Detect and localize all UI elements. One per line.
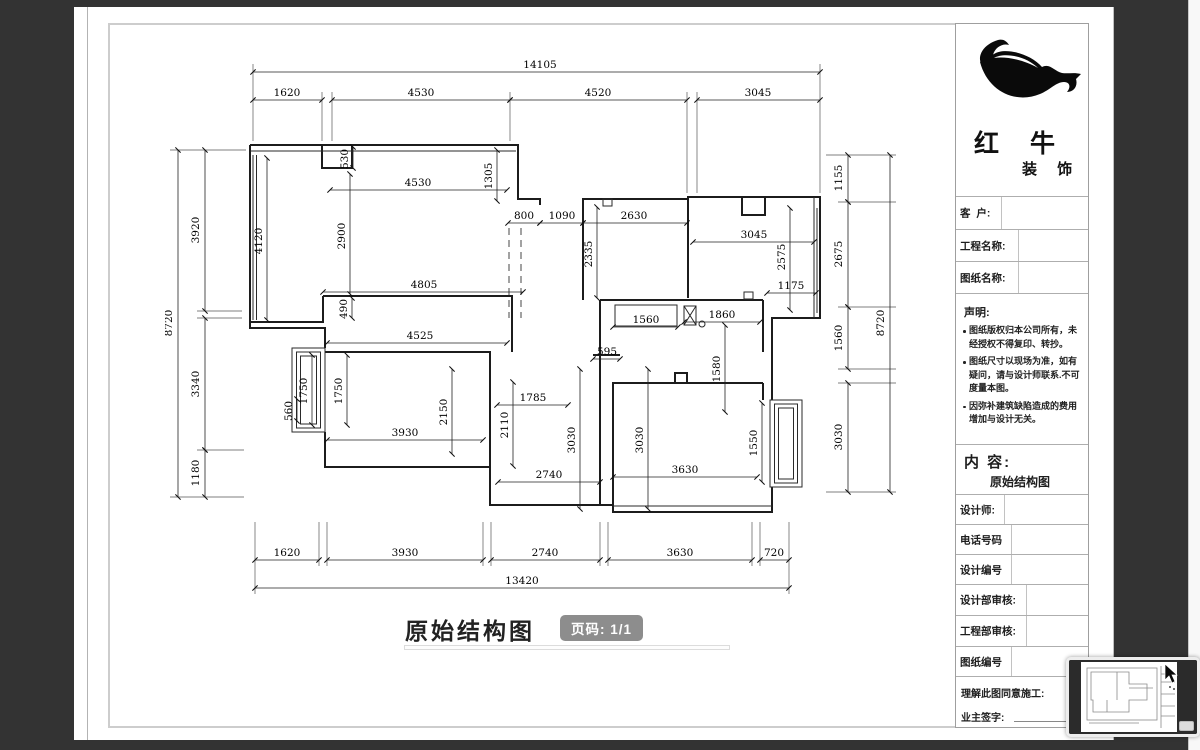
dim-label: 2110 [499, 412, 511, 439]
field-divider [1026, 585, 1027, 615]
dim-label: 3030 [566, 427, 578, 454]
field-row-project-name: 工程名称: [956, 229, 1088, 261]
page-number-badge: 页码: 1/1 [560, 615, 643, 641]
field-row-drawing-name: 图纸名称: [956, 261, 1088, 293]
walls [250, 145, 820, 512]
title-block: 红 牛 装 饰 客 户: 工程名称: 图纸名称: 声明: 图纸版权归本公司所有，… [955, 23, 1089, 728]
dim-label: 1620 [274, 87, 301, 99]
field-label: 设计部审核: [960, 593, 1016, 608]
company-logo: 红 牛 装 饰 [956, 24, 1088, 196]
dim-label: 2740 [536, 469, 563, 481]
minimap-thumbnail [1069, 660, 1197, 734]
field-row-customer: 客 户: [956, 196, 1088, 229]
field-label: 客 户: [960, 206, 990, 221]
content-block: 内 容: 原始结构图 [956, 444, 1088, 494]
dim-label: 3030 [634, 427, 646, 454]
field-label: 工程部审核: [960, 624, 1016, 639]
dim-label: 800 [514, 210, 534, 222]
field-label: 图纸名称: [960, 270, 1006, 285]
field-label: 工程名称: [960, 238, 1006, 253]
dim-label: 2150 [438, 399, 450, 426]
dim-label: 8720 [875, 310, 887, 337]
page-number-text: 页码: 1/1 [571, 618, 632, 638]
dim-label: 1620 [274, 547, 301, 559]
statement-item: 因弥补建筑缺陷造成的费用增加与设计无关。 [962, 400, 1084, 427]
field-divider [1026, 616, 1027, 646]
dim-label: 1750 [298, 378, 310, 405]
vertical-scrollbar[interactable] [1188, 0, 1200, 750]
dim-label: 2675 [833, 241, 845, 268]
dim-label: 560 [283, 401, 295, 421]
drawing-title-underline [404, 645, 730, 650]
field-row-eng-review: 工程部审核: [956, 615, 1088, 646]
field-divider [1011, 555, 1012, 584]
dim-label: 13420 [505, 575, 538, 587]
field-divider [1018, 230, 1019, 261]
dim-label: 2900 [336, 223, 348, 250]
field-divider [1018, 262, 1019, 293]
drawing-title: 原始结构图 [405, 612, 535, 646]
field-label: 设计师: [960, 502, 995, 517]
statement-title: 声明: [964, 304, 990, 320]
dashed-opening [509, 228, 521, 318]
dim-label: 2740 [532, 547, 559, 559]
statement-block: 声明: 图纸版权归本公司所有，未经授权不得复印、转抄。 图纸尺寸以现场为准，如有… [956, 293, 1088, 444]
dimension-lines [178, 72, 890, 588]
minimap-preview[interactable] [1066, 657, 1200, 737]
dim-label: 1560 [633, 314, 660, 326]
sheet-fold-line [87, 7, 88, 740]
dim-label: 4530 [408, 87, 435, 99]
dim-label: 3930 [392, 427, 419, 439]
dim-label: 530 [339, 149, 351, 169]
field-label: 图纸编号 [960, 654, 1002, 669]
dim-label: 4805 [411, 279, 438, 291]
dim-label: 595 [597, 346, 617, 358]
dim-label: 4520 [585, 87, 612, 99]
dim-label: 3630 [672, 464, 699, 476]
dim-label: 1090 [549, 210, 576, 222]
dim-label: 1560 [833, 325, 845, 352]
dim-label: 3930 [392, 547, 419, 559]
viewer-canvas: { "viewer": { "page_badge": "页码: 1/1" },… [0, 0, 1200, 750]
dim-label: 4120 [253, 228, 265, 255]
field-label: 电话号码 [960, 532, 1002, 547]
minimap-toggle-button[interactable] [1179, 721, 1194, 731]
dim-label: 3920 [190, 217, 202, 244]
dim-label: 2335 [583, 241, 595, 268]
construction-consent-label: 理解此图同意施工: [961, 685, 1044, 700]
dim-label: 1155 [833, 165, 845, 192]
statement-item: 图纸版权归本公司所有，未经授权不得复印、转抄。 [962, 324, 1084, 351]
dim-label: 1550 [748, 430, 760, 457]
window-lines [253, 155, 817, 487]
field-label: 设计编号 [960, 562, 1002, 577]
dim-label: 3045 [741, 229, 768, 241]
dim-label: 1180 [190, 460, 202, 487]
dim-label: 1305 [483, 163, 495, 190]
dim-label: 490 [338, 299, 350, 319]
bull-logo-icon [964, 32, 1084, 124]
content-value: 原始结构图 [990, 473, 1050, 490]
dim-label: 4525 [407, 330, 434, 342]
dim-label: 3045 [745, 87, 772, 99]
dim-label: 3630 [667, 547, 694, 559]
dim-label: 1860 [709, 309, 736, 321]
dim-label: 2575 [776, 244, 788, 271]
logo-text-line2: 装 饰 [1022, 158, 1080, 179]
dim-label: 14105 [523, 59, 556, 71]
wall-accents [250, 151, 814, 506]
logo-text-line1: 红 牛 [974, 124, 1067, 160]
dim-label: 1580 [711, 356, 723, 383]
content-label: 内 容: [964, 451, 1011, 472]
dim-label: 1175 [778, 280, 805, 292]
field-row-design-no: 设计编号 [956, 554, 1088, 584]
dim-label: 3030 [833, 424, 845, 451]
field-divider [1011, 525, 1012, 554]
statement-item: 图纸尺寸以现场为准，如有疑问，请与设计师联系.不可度量本图。 [962, 355, 1084, 396]
dim-label: 2630 [621, 210, 648, 222]
field-divider [1004, 495, 1005, 524]
dim-label: 4530 [405, 177, 432, 189]
field-row-designer: 设计师: [956, 494, 1088, 524]
field-divider [1001, 197, 1002, 229]
field-row-design-review: 设计部审核: [956, 584, 1088, 615]
field-divider [1011, 647, 1012, 676]
dim-label: 3340 [190, 371, 202, 398]
floor-plan: 14105 1620 4530 4520 3045 8720 3920 3340… [165, 45, 965, 605]
dim-label: 720 [764, 547, 784, 559]
dim-label: 1750 [333, 378, 345, 405]
field-row-phone: 电话号码 [956, 524, 1088, 554]
statement-list: 图纸版权归本公司所有，未经授权不得复印、转抄。 图纸尺寸以现场为准，如有疑问，请… [962, 324, 1084, 431]
dim-label: 1785 [520, 392, 547, 404]
dim-label: 8720 [165, 310, 175, 337]
owner-signature-label: 业主签字: [961, 709, 1004, 724]
